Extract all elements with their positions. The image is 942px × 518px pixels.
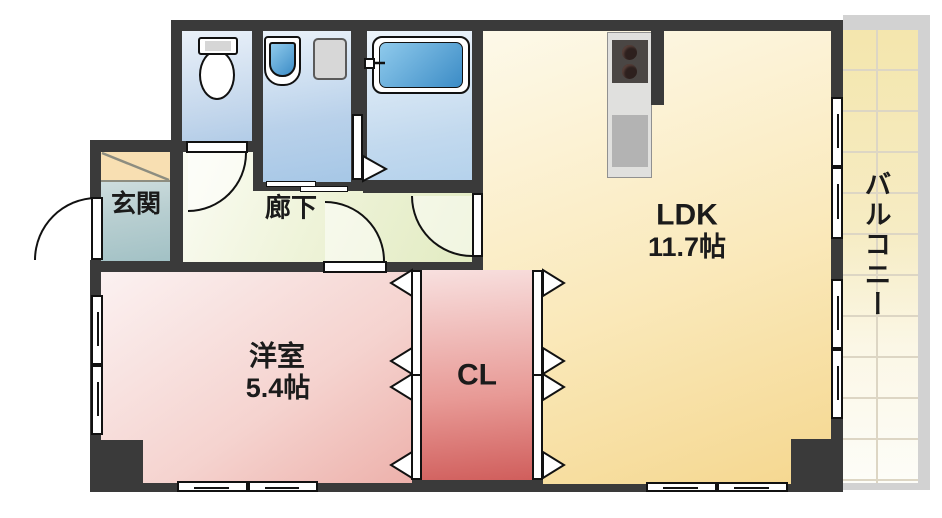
ldk-size-label: 11.7帖 <box>648 233 726 261</box>
western-room-label: 洋室 <box>249 341 305 370</box>
toilet-tank-lid <box>205 41 231 51</box>
western-room-left-window <box>91 365 103 435</box>
stove-burner-icon <box>622 64 637 79</box>
western-room-door-leaf <box>323 261 387 273</box>
western-room-bottom-window <box>248 481 318 492</box>
kitchen-sink <box>612 115 648 167</box>
closet-label: CL <box>457 359 497 391</box>
western-room-size-label: 5.4帖 <box>246 374 311 402</box>
hallway-label: 廊下 <box>265 194 317 221</box>
stove-burner-icon <box>622 45 637 60</box>
kitchen-wall-stub <box>651 20 664 105</box>
closet-folding-door-right <box>532 270 543 480</box>
ldk-door-leaf <box>472 193 483 257</box>
ldk-balcony-window-lower <box>831 279 843 349</box>
entrance-door-swing <box>34 197 97 260</box>
ldk-bottom-window <box>717 482 788 492</box>
washbasin-bowl <box>269 42 296 77</box>
ldk-bottom-window <box>646 482 717 492</box>
floor-plan: 玄関 廊下 LDK 11.7帖 洋室 5.4帖 CL バルコニー <box>0 0 942 518</box>
western-room-bottom-window <box>177 481 248 492</box>
closet-folding-door-left <box>411 270 422 480</box>
washing-machine-icon <box>313 38 347 80</box>
ldk-balcony-window-upper <box>831 97 843 167</box>
kitchen-stove <box>612 40 648 83</box>
toilet-door-leaf <box>186 141 248 153</box>
entrance-door-leaf <box>91 197 103 260</box>
entrance-label: 玄関 <box>111 191 161 217</box>
shoe-cabinet <box>101 152 170 182</box>
ldk-balcony-window-upper <box>831 167 843 239</box>
western-room-left-window <box>91 295 103 365</box>
ldk-label: LDK <box>656 199 718 231</box>
ldk-balcony-window-lower <box>831 349 843 419</box>
toilet-icon <box>199 50 235 100</box>
washroom-sliding-door <box>300 186 348 192</box>
bathtub-water <box>379 42 463 88</box>
bath-faucet-icon <box>364 58 375 69</box>
bathroom-door-panel <box>352 114 363 180</box>
balcony-label: バルコニー <box>862 170 889 320</box>
